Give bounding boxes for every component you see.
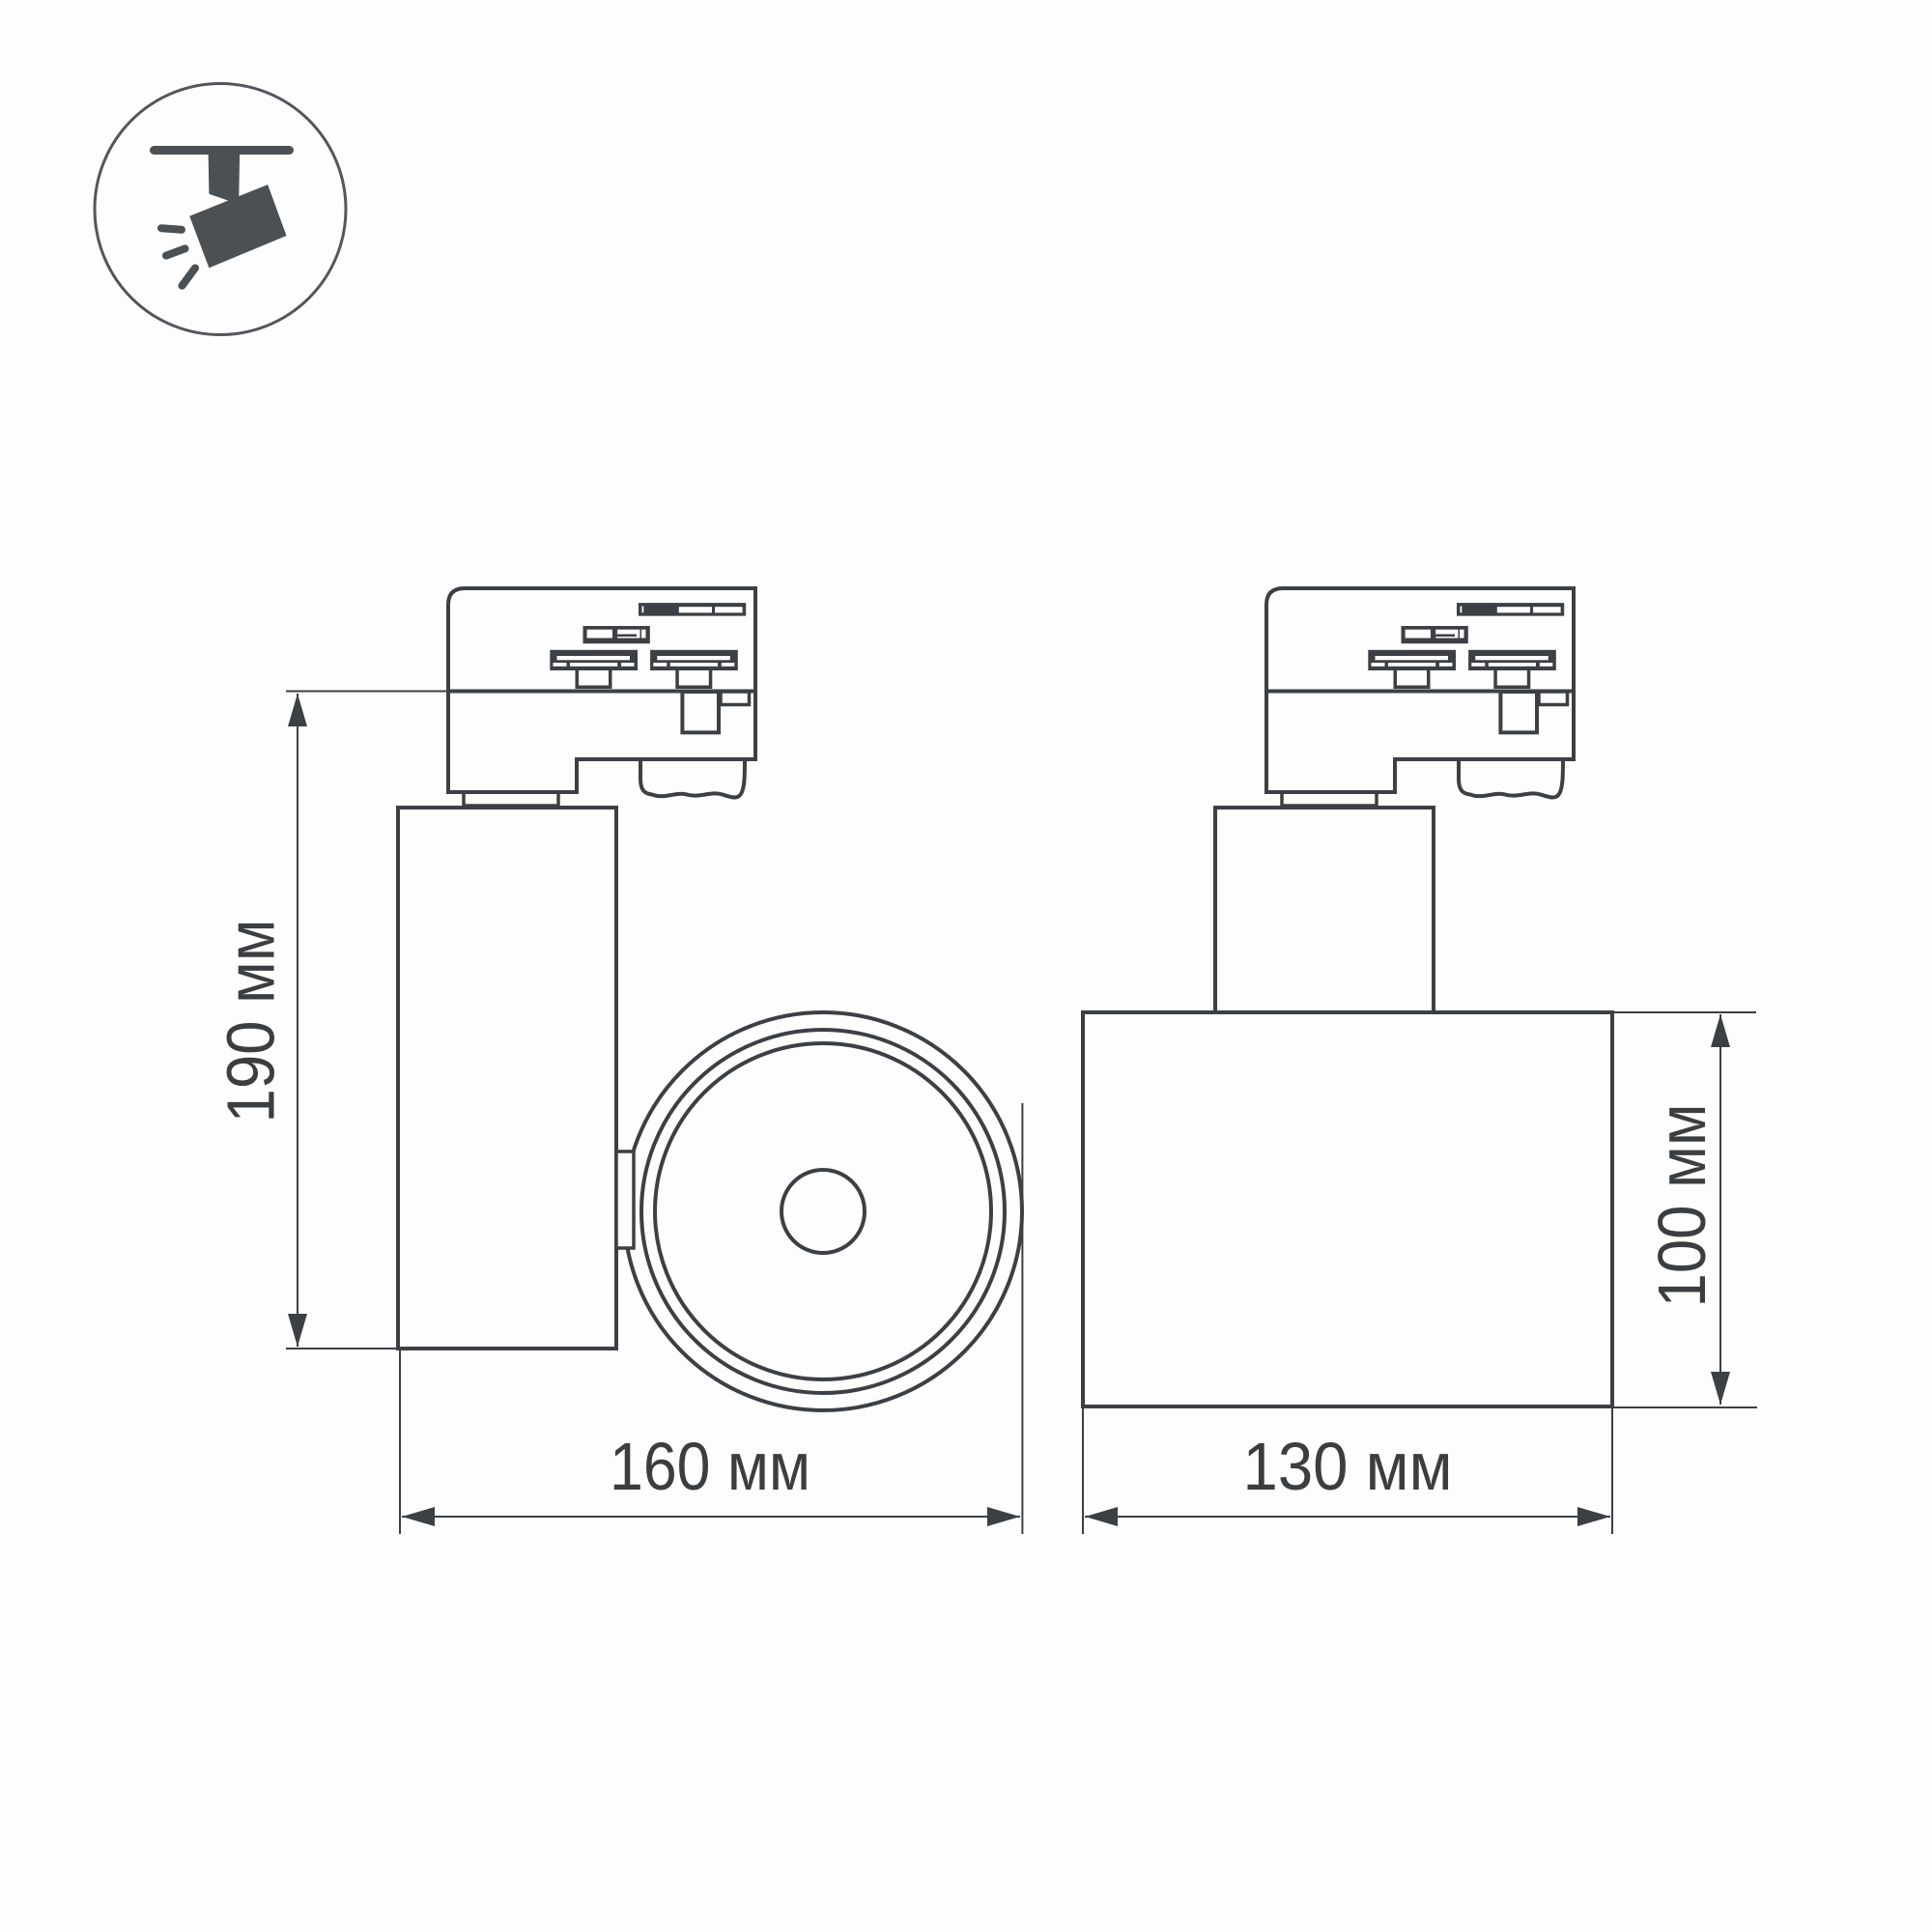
svg-text:130 мм: 130 мм <box>1243 1429 1453 1504</box>
svg-text:100 мм: 100 мм <box>1644 1104 1719 1308</box>
svg-text:160 мм: 160 мм <box>610 1429 810 1504</box>
svg-text:190 мм: 190 мм <box>213 920 289 1123</box>
